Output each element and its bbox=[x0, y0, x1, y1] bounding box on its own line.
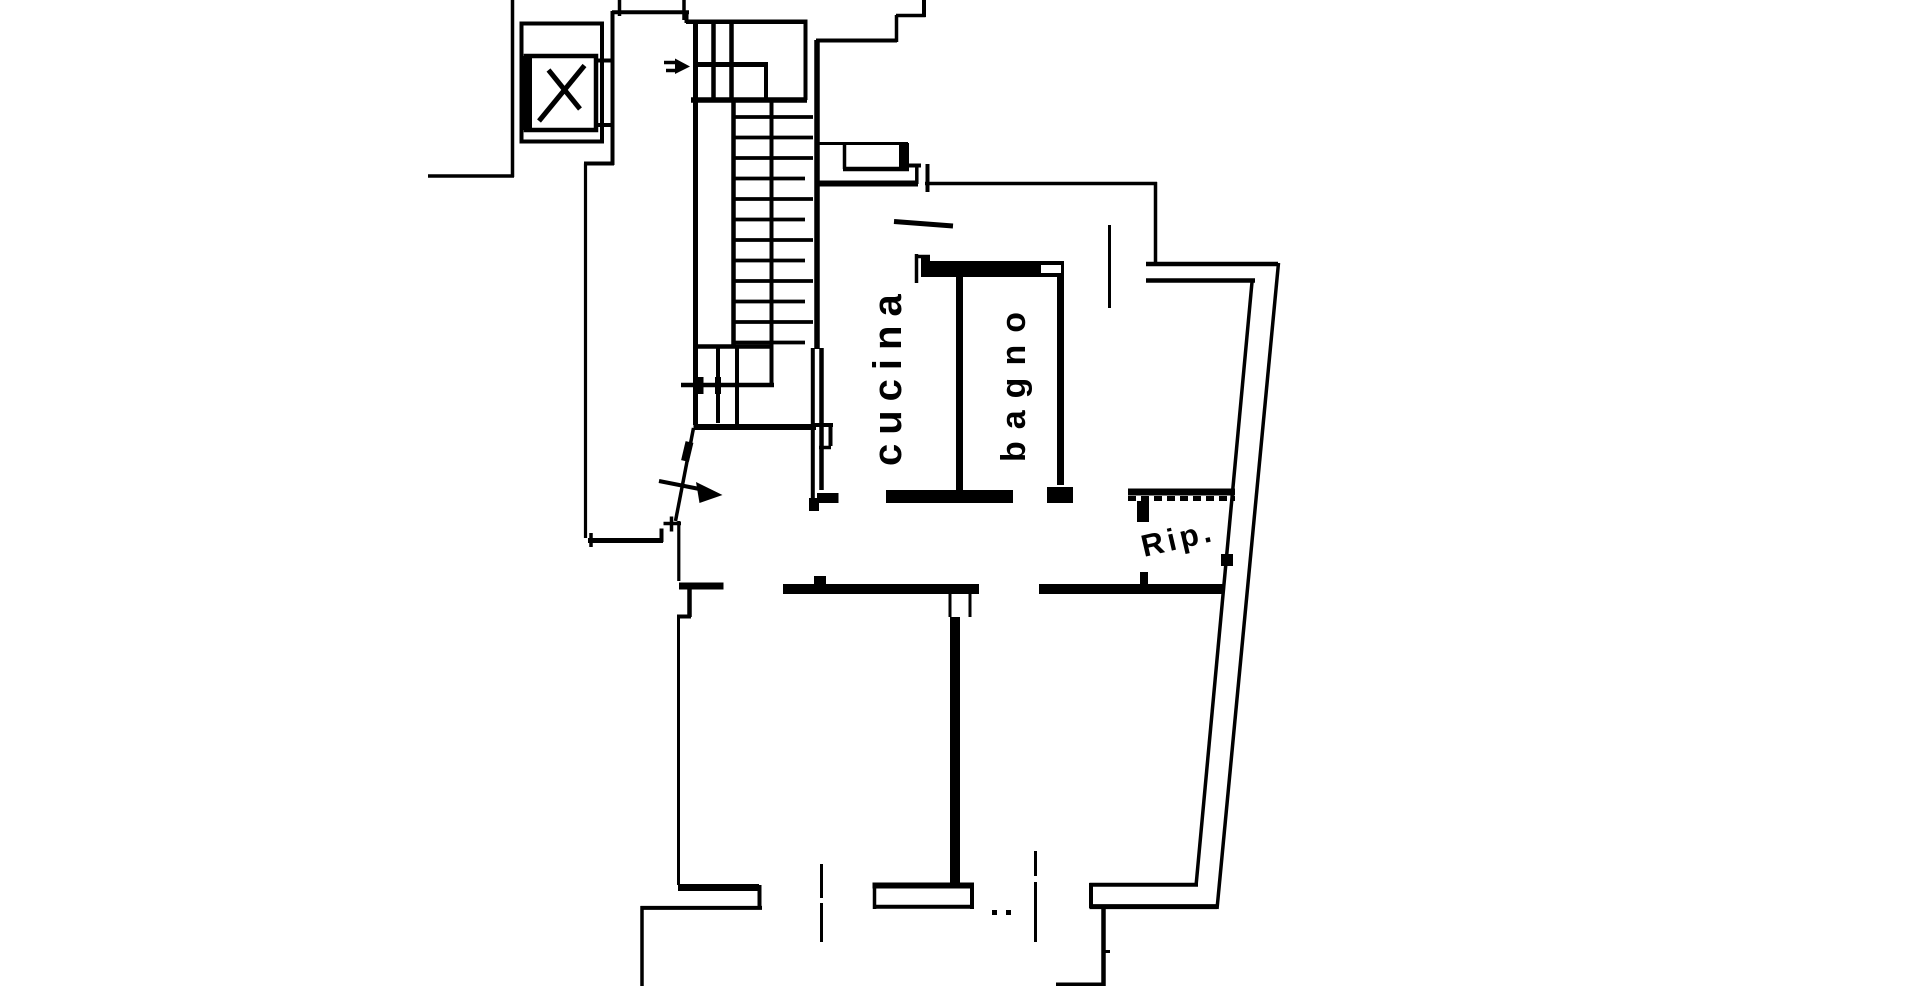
svg-text:bagno: bagno bbox=[995, 300, 1033, 462]
svg-text:cucina: cucina bbox=[866, 285, 910, 466]
